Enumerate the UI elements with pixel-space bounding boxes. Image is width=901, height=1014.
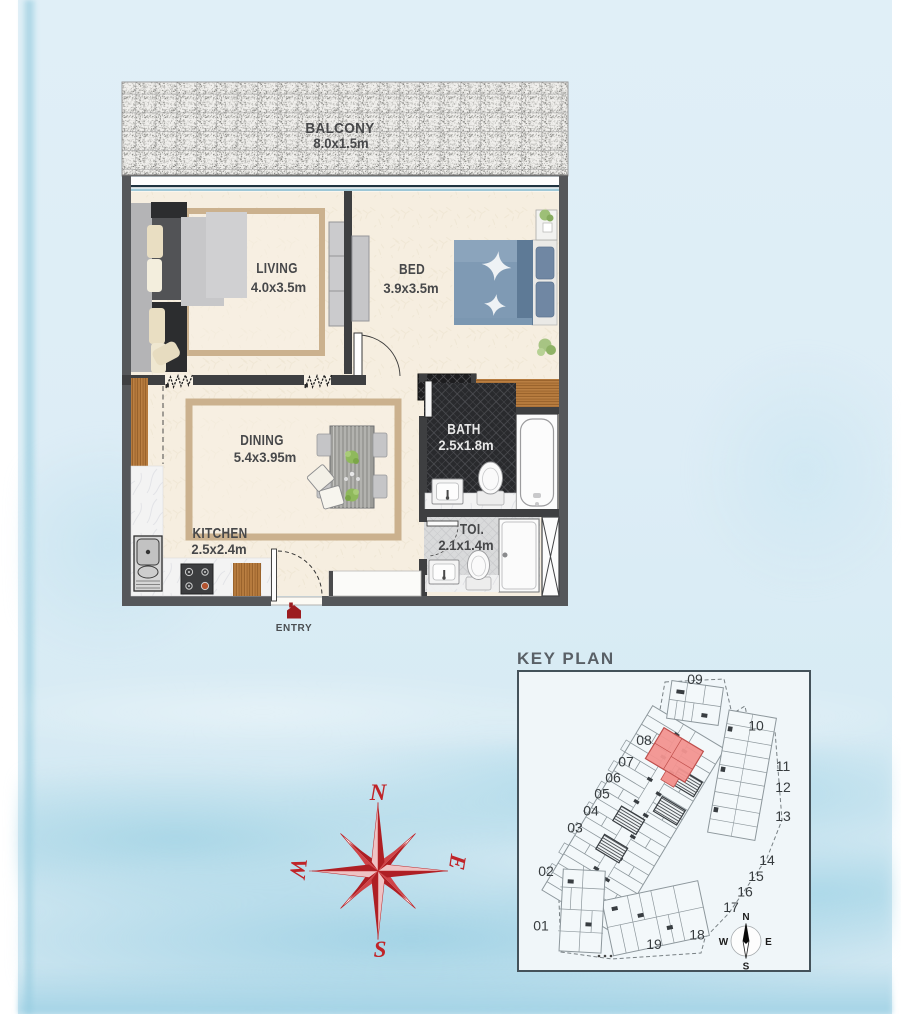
svg-text:01: 01: [533, 918, 549, 934]
svg-text:N: N: [369, 781, 388, 805]
svg-text:08: 08: [636, 732, 652, 748]
svg-text:13: 13: [775, 808, 791, 824]
svg-text:S: S: [374, 937, 387, 961]
svg-text:06: 06: [605, 770, 621, 786]
svg-text:4.0x3.5m: 4.0x3.5m: [251, 280, 306, 295]
svg-text:18: 18: [689, 927, 705, 943]
svg-text:BATH: BATH: [447, 421, 480, 437]
svg-text:TOI.: TOI.: [460, 521, 484, 537]
svg-text:02: 02: [538, 863, 554, 879]
svg-text:E: E: [765, 937, 772, 948]
svg-text:3.9x3.5m: 3.9x3.5m: [383, 281, 438, 296]
svg-text:11: 11: [776, 758, 791, 774]
svg-text:14: 14: [759, 852, 775, 868]
svg-text:KITCHEN: KITCHEN: [192, 525, 247, 541]
svg-text:2.5x2.4m: 2.5x2.4m: [191, 542, 246, 557]
svg-text:17: 17: [723, 899, 739, 915]
svg-text:2.1x1.4m: 2.1x1.4m: [438, 538, 493, 553]
svg-text:S: S: [743, 962, 750, 973]
svg-text:07: 07: [618, 754, 634, 770]
svg-text:12: 12: [775, 779, 791, 795]
svg-text:03: 03: [567, 820, 583, 836]
svg-text:ENTRY: ENTRY: [276, 623, 313, 634]
svg-text:19: 19: [646, 936, 662, 952]
svg-text:16: 16: [737, 884, 753, 900]
svg-text:LIVING: LIVING: [256, 260, 298, 276]
svg-text:15: 15: [748, 868, 764, 884]
svg-text:05: 05: [594, 786, 610, 802]
svg-text:5.4x3.95m: 5.4x3.95m: [234, 450, 297, 465]
svg-text:DINING: DINING: [240, 432, 284, 448]
svg-text:8.0x1.5m: 8.0x1.5m: [313, 136, 368, 151]
svg-text:E: E: [444, 852, 468, 872]
svg-text:04: 04: [583, 803, 599, 819]
svg-text:09: 09: [687, 671, 703, 687]
svg-text:BALCONY: BALCONY: [305, 120, 375, 137]
svg-text:2.5x1.8m: 2.5x1.8m: [438, 438, 493, 453]
svg-text:10: 10: [748, 718, 764, 734]
svg-text:N: N: [742, 912, 749, 923]
svg-text:W: W: [288, 856, 312, 881]
svg-text:BED: BED: [399, 261, 425, 277]
svg-text:W: W: [719, 937, 729, 948]
